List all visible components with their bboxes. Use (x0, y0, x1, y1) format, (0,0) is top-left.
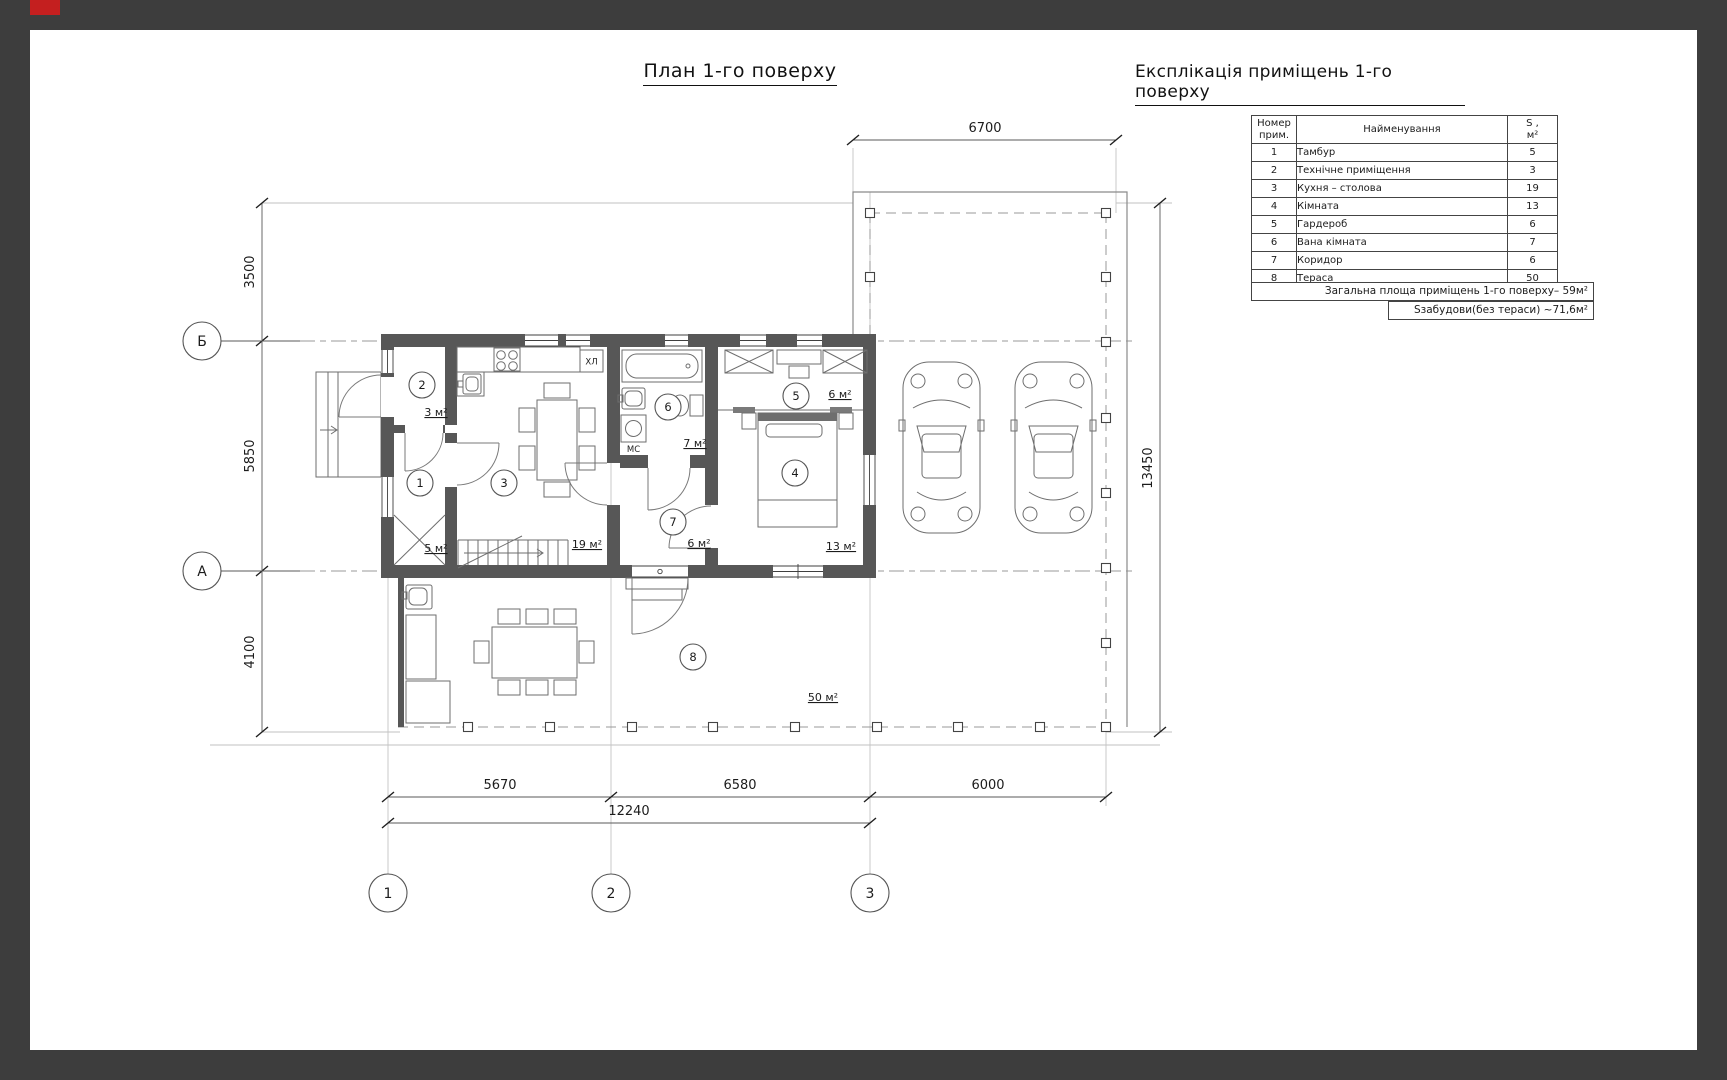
dining-table-icon (519, 383, 595, 497)
dim-right-label: 13450 (1141, 447, 1156, 488)
fridge-label: ХЛ (585, 358, 597, 368)
table-row: 3Кухня – столова19 (1252, 180, 1558, 198)
room-number: 1 (416, 476, 423, 490)
area-label: 50 м² (808, 691, 838, 704)
car-icon (899, 362, 984, 533)
terrace-table-icon (474, 609, 594, 695)
built-area-row: Sзабудови(без тераси) ~71,6м² (1388, 301, 1594, 320)
page-title: План 1-го поверху (595, 60, 885, 86)
dim-bottom-label: 6000 (971, 778, 1004, 793)
area-label: 7 м² (683, 437, 706, 450)
area-label: 13 м² (826, 540, 856, 553)
terrace-furniture (402, 578, 688, 723)
kitchen-furniture (457, 347, 603, 497)
vestibule-cross (394, 515, 445, 565)
table-cell: 7 (1508, 234, 1558, 252)
table-cell: 13 (1508, 198, 1558, 216)
dim-total-label: 12240 (608, 804, 649, 819)
table-row: 5Гардероб6 (1252, 216, 1558, 234)
room-number: 5 (792, 389, 799, 403)
table-row: 2Технічне приміщення3 (1252, 162, 1558, 180)
table-cell: 7 (1252, 252, 1297, 270)
dim-left-label: 4100 (243, 635, 258, 668)
table-cell: Коридор (1297, 252, 1508, 270)
stairs-arrow-icon (464, 549, 543, 557)
total-area-row: Загальна площа приміщень 1-го поверху– 5… (1251, 282, 1594, 301)
table-cell: 4 (1252, 198, 1297, 216)
area-label: 5 м² (424, 542, 447, 555)
room-number: 7 (669, 515, 676, 529)
table-cell: Тамбур (1297, 144, 1508, 162)
table-cell: 6 (1508, 216, 1558, 234)
area-label: 6 м² (687, 537, 710, 550)
table-cell: Технічне приміщення (1297, 162, 1508, 180)
area-label: 6 м² (828, 388, 851, 401)
col-area-header: S ,м² (1508, 116, 1558, 144)
grid-label-a: А (197, 564, 207, 580)
table-row: 4Кімната13 (1252, 198, 1558, 216)
sink-icon (458, 374, 481, 394)
table-cell: 6 (1252, 234, 1297, 252)
floor-plan: 6700 3500 5850 4100 13450 5670 6580 6000… (150, 100, 1250, 930)
table-row: 7Коридор6 (1252, 252, 1558, 270)
col-name-header: Найменування (1297, 116, 1508, 144)
room-number: 8 (689, 650, 696, 664)
table-cell: 1 (1252, 144, 1297, 162)
table-header-row: Номерприм. Найменування S ,м² (1252, 116, 1558, 144)
table-cell: 3 (1508, 162, 1558, 180)
dim-left-label: 5850 (243, 439, 258, 472)
room-number: 2 (418, 378, 425, 392)
grid-label-1: 1 (384, 886, 393, 902)
table-cell: Гардероб (1297, 216, 1508, 234)
dim-bottom-label: 5670 (483, 778, 516, 793)
table-row: 6Вана кімната7 (1252, 234, 1558, 252)
table-cell: 2 (1252, 162, 1297, 180)
record-indicator (30, 0, 60, 15)
bathtub-icon (622, 350, 702, 382)
carport (398, 192, 1127, 732)
dim-bottom-label: 6580 (723, 778, 756, 793)
dim-top-label: 6700 (968, 121, 1001, 136)
dim-left-label: 3500 (243, 255, 258, 288)
table-cell: 5 (1508, 144, 1558, 162)
col-number-header: Номерприм. (1252, 116, 1297, 144)
grid-label-2: 2 (607, 886, 616, 902)
car-icon (1011, 362, 1096, 533)
room-number: 3 (500, 476, 507, 490)
washing-machine-icon (621, 415, 646, 442)
grid-label-3: 3 (866, 886, 875, 902)
table-cell: Кімната (1297, 198, 1508, 216)
area-label: 3 м² (424, 406, 447, 419)
table-cell: Вана кімната (1297, 234, 1508, 252)
table-cell: 3 (1252, 180, 1297, 198)
table-cell: 19 (1508, 180, 1558, 198)
outdoor-sink-icon (402, 585, 432, 609)
room-number: 6 (664, 400, 671, 414)
drawing-sheet: План 1-го поверху Експлікація приміщень … (30, 30, 1697, 1050)
table-cell: 5 (1252, 216, 1297, 234)
grid-label-b: Б (197, 334, 207, 350)
stairs (458, 536, 568, 568)
window-frame: План 1-го поверху Експлікація приміщень … (0, 0, 1727, 1080)
room-number: 4 (791, 466, 798, 480)
rooms-table: Номерприм. Найменування S ,м² 1Тамбур52Т… (1251, 115, 1558, 288)
entry-porch (316, 372, 381, 477)
washer-label: МС (627, 445, 640, 455)
table-row: 1Тамбур5 (1252, 144, 1558, 162)
washbasin-icon (618, 388, 645, 409)
table-cell: Кухня – столова (1297, 180, 1508, 198)
table-cell: 6 (1508, 252, 1558, 270)
area-label: 19 м² (572, 538, 602, 551)
doors (339, 375, 711, 634)
